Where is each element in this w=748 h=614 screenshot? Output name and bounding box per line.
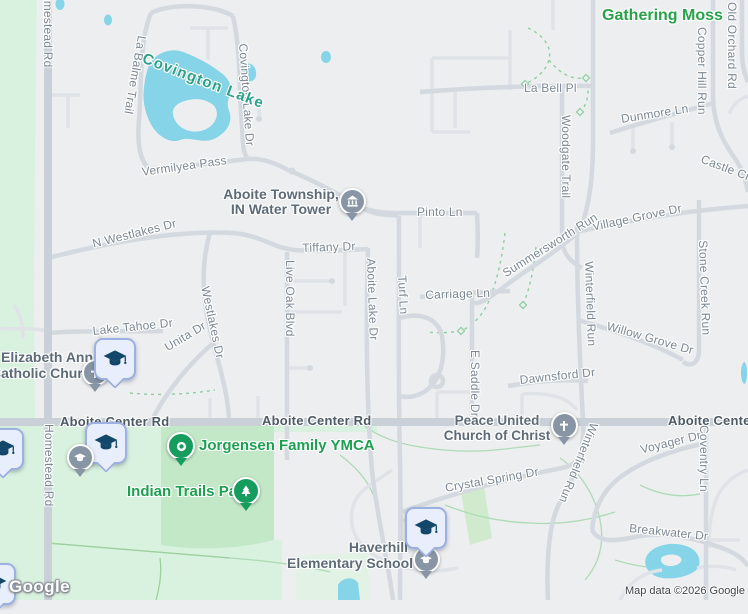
road-label-e-saddle-dr: E Saddle Dr (468, 350, 482, 417)
tree-icon (240, 485, 252, 497)
graduation-cap-icon (413, 515, 439, 541)
place-label-ymca[interactable]: Jorgensen Family YMCA (199, 437, 375, 454)
map-canvas[interactable]: Homestead Rd Homestead Rd La Balme Trail… (0, 0, 748, 600)
water-tower-label-line1: Aboite Township, (219, 187, 343, 202)
road-label-pinto-ln: Pinto Ln (417, 205, 463, 219)
graduation-cap-icon (102, 346, 128, 372)
road-label-aboite-center-rd-right: Aboite Center Rd (668, 413, 748, 428)
graduation-cap-icon (0, 436, 16, 462)
road-label-tiffany-dr: Tiffany Dr (302, 239, 356, 255)
graduation-cap-icon (73, 451, 87, 465)
road-label-aboite-center-rd-mid: Aboite Center Rd (262, 413, 371, 428)
map-attribution: Map data ©2026 Google (625, 585, 745, 597)
road-label-woodgate-trail: Woodgate Trail (559, 115, 573, 198)
road-label-carriage-ln: Carriage Ln (425, 286, 490, 302)
place-label-haverhill-line1[interactable]: Haverhill (287, 540, 408, 555)
place-label-haverhill-line2[interactable]: Elementary School (287, 556, 408, 571)
road-label-homestead-rd: Homestead Rd (42, 424, 56, 506)
road-label-aboite-lake-dr: Aboite Lake Dr (364, 258, 381, 341)
place-label-gathering-moss[interactable]: Gathering Moss (602, 7, 723, 25)
place-label-peace-united[interactable]: Peace United Church of Christ (437, 413, 557, 443)
dot-icon (176, 441, 187, 452)
graduation-cap-icon (0, 571, 8, 597)
church-poi-pin-peace[interactable] (550, 412, 578, 445)
place-label-water-tower[interactable]: Aboite Township, IN Water Tower (219, 187, 343, 217)
road-label-winterfield-run-upper: Winterfield Run (582, 261, 599, 346)
peace-united-label-line1: Peace United (437, 413, 557, 428)
road-label-copper-hill-run: Copper Hill Run (695, 27, 709, 115)
cross-icon (558, 420, 570, 432)
road-label-homestead-rd-top: Homestead Rd (41, 0, 55, 67)
google-logo[interactable]: Google (9, 577, 70, 597)
road-label-turf-ln: Turf Ln (395, 275, 411, 315)
ymca-pin[interactable] (167, 432, 195, 466)
indian-trails-park-pin[interactable] (232, 477, 260, 511)
school-pin-elizabeth-area[interactable] (94, 338, 136, 380)
school-pin-haverhill[interactable] (405, 507, 447, 549)
school-pin-left-edge[interactable] (0, 428, 24, 470)
road-label-live-oak-blvd: Live Oak Blvd (283, 260, 297, 337)
water-tower-icon (346, 195, 359, 208)
road-label-coventry-ln: Coventry Ln (697, 425, 711, 492)
road-label-old-orchard-rd: Old Orchard Rd (725, 2, 739, 89)
school-poi-pin-southwest[interactable] (66, 444, 94, 477)
water-tower-label-line2: IN Water Tower (219, 202, 343, 217)
graduation-cap-icon (93, 430, 119, 456)
peace-united-label-line2: Church of Christ (437, 428, 557, 443)
road-label-la-bell-pl: La Bell Pl (524, 81, 577, 95)
place-label-elizabeth-ann-line1[interactable]: Elizabeth Ann (1, 349, 93, 365)
water-tower-pin[interactable] (338, 188, 366, 221)
